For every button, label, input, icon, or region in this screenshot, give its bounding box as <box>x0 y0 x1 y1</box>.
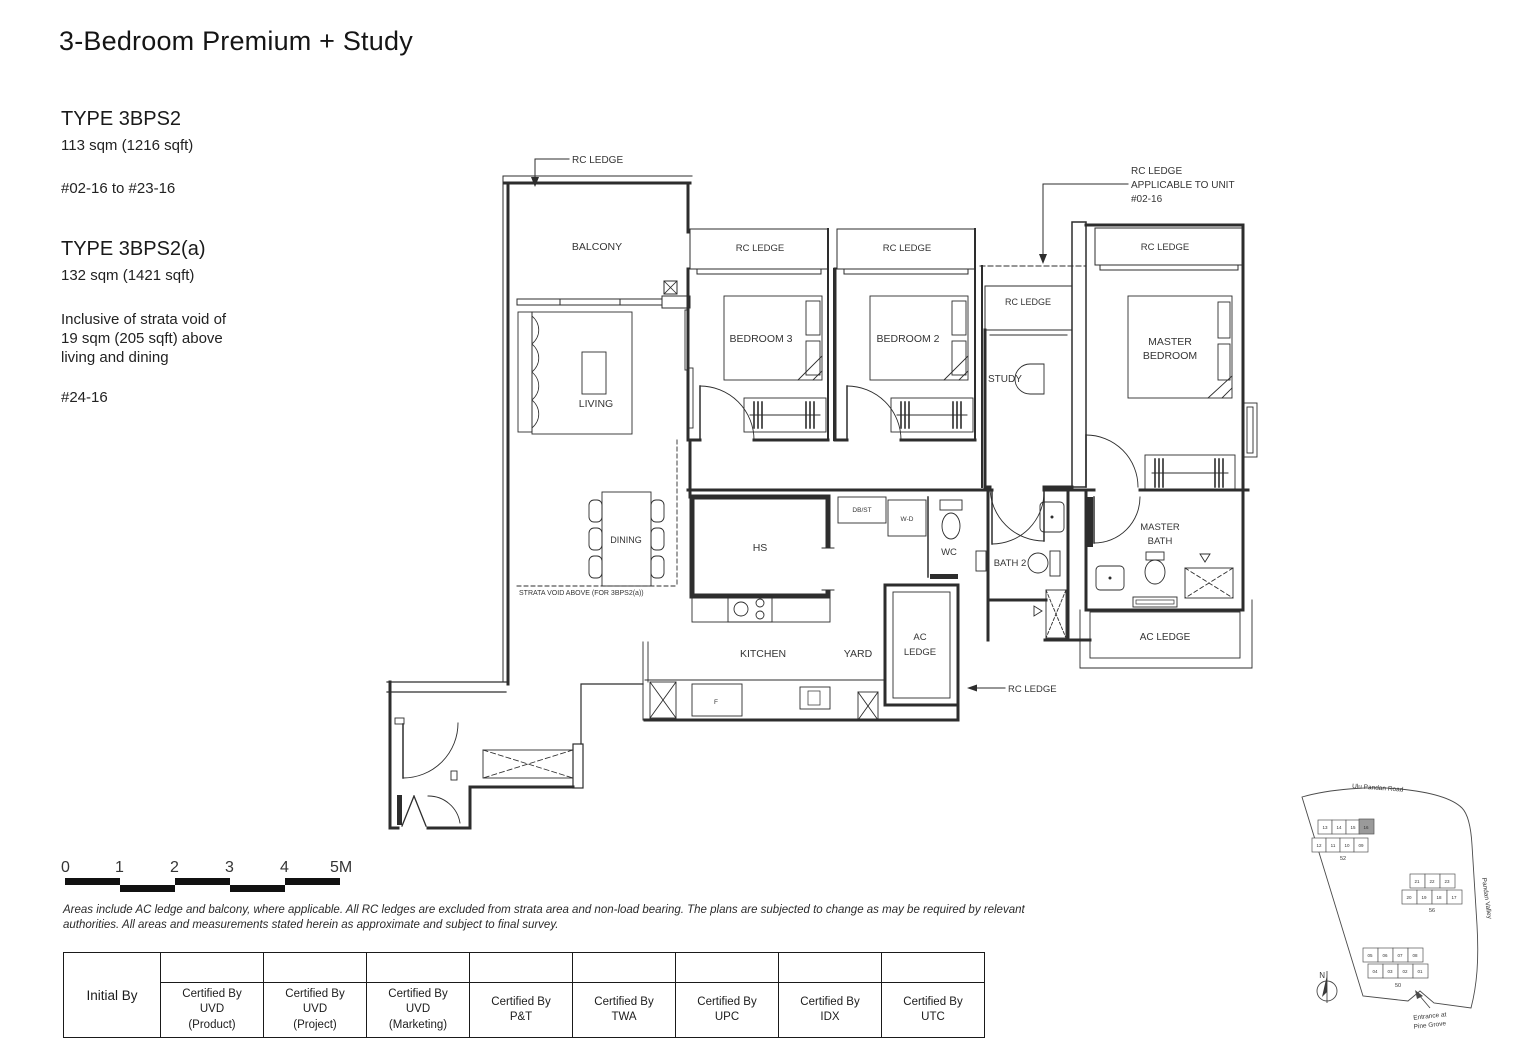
stack-number: 01 <box>1417 969 1423 974</box>
stack-number: 04 <box>1372 969 1378 974</box>
stack-number: 17 <box>1451 895 1457 900</box>
block-label: 52 <box>1340 856 1346 862</box>
scale-tick-4: 4 <box>280 859 289 876</box>
strata-void-note: Inclusive of strata void of 19 sqm (205 … <box>61 310 226 367</box>
strata-void-label: STRATA VOID ABOVE (FOR 3BPS2(a)) <box>519 590 644 597</box>
cert-line: UTC <box>882 1010 984 1025</box>
db-st-label: DB/ST <box>852 507 871 514</box>
wardrobe-master <box>1145 455 1235 491</box>
ac-ledge-mid-label-line1: AC <box>913 632 926 643</box>
hob <box>728 596 772 622</box>
ac-ledge-mid-label-line2: LEDGE <box>904 647 936 658</box>
certified-by-cell: Certified By UTC <box>882 983 985 1038</box>
wardrobe-bedroom2 <box>891 398 973 432</box>
scale-tick-0: 0 <box>61 859 70 876</box>
strata-void-note-line2: 19 sqm (205 sqft) above <box>61 329 226 348</box>
stack-number: 14 <box>1336 825 1342 830</box>
rc-ledge-label-bed2: RC LEDGE <box>883 243 932 254</box>
stack-number: 07 <box>1397 953 1403 958</box>
cert-line: TWA <box>573 1010 675 1025</box>
master-bath-shower <box>1185 568 1233 598</box>
cabinet-hatch-yard <box>858 692 878 720</box>
bedroom2-label: BEDROOM 2 <box>876 333 939 345</box>
block-label: 56 <box>1429 908 1435 914</box>
certified-by-cell: Certified By TWA <box>573 983 676 1038</box>
signature-cell <box>161 953 264 983</box>
rc-ledge-label-master: RC LEDGE <box>1141 242 1190 253</box>
type-2-area: 132 sqm (1421 sqft) <box>61 267 194 284</box>
master-bath-toilet <box>1145 552 1165 584</box>
bath2-toilet <box>1028 551 1060 576</box>
type-2-name: TYPE 3BPS2(a) <box>61 238 206 261</box>
road-label-pandan-valley: Pandan Valley <box>1480 877 1493 920</box>
master-bath-label-line2: BATH <box>1148 536 1173 547</box>
scale-tick-5: 5M <box>330 859 352 876</box>
stack-number: 03 <box>1387 969 1393 974</box>
signature-cell <box>779 953 882 983</box>
balcony-label: BALCONY <box>572 241 622 253</box>
cert-line: Certified By <box>676 995 778 1010</box>
cert-line: UVD <box>264 1002 366 1017</box>
rc-ledge-applicable-line1: RC LEDGE <box>1131 166 1182 177</box>
certified-by-cell: Certified By IDX <box>779 983 882 1038</box>
strata-void-note-line1: Inclusive of strata void of <box>61 310 226 329</box>
entrance-label-line2: Pine Grove <box>1413 1020 1446 1030</box>
wc-toilet <box>940 500 962 539</box>
dining-label: DINING <box>610 535 642 545</box>
stack-number: 20 <box>1406 895 1412 900</box>
cert-line: Certified By <box>882 995 984 1010</box>
stack-number: 05 <box>1367 953 1373 958</box>
certified-by-cell: Certified By UPC <box>676 983 779 1038</box>
bath2-shower <box>1046 590 1066 638</box>
rc-ledge-label-bed3: RC LEDGE <box>736 243 785 254</box>
type-2-units: #24-16 <box>61 389 108 406</box>
cert-line: Certified By <box>779 995 881 1010</box>
yard-label: YARD <box>844 648 873 660</box>
cert-line: P&T <box>470 1010 572 1025</box>
certified-by-cell: Certified By P&T <box>470 983 573 1038</box>
disclaimer-line1: Areas include AC ledge and balcony, wher… <box>63 903 1025 918</box>
cert-line: Certified By <box>573 995 675 1010</box>
certified-by-cell: Certified By UVD (Marketing) <box>367 983 470 1038</box>
stack-number: 08 <box>1412 953 1418 958</box>
cert-line: Certified By <box>367 987 469 1002</box>
cert-line: UVD <box>367 1002 469 1017</box>
cert-line: UPC <box>676 1010 778 1025</box>
signature-cell <box>470 953 573 983</box>
block-label: 50 <box>1395 983 1401 989</box>
wc-label: WC <box>941 547 957 558</box>
certified-by-cell: Certified By UVD (Project) <box>264 983 367 1038</box>
site-map: Ulu Pandan Road Pandan Valley Entrance a… <box>1285 770 1539 1057</box>
stack-number: 09 <box>1358 843 1364 848</box>
cert-line: Certified By <box>264 987 366 1002</box>
signature-cell <box>882 953 985 983</box>
stack-number: 06 <box>1382 953 1388 958</box>
kitchen-label: KITCHEN <box>740 648 786 660</box>
tv-console <box>582 352 606 394</box>
rc-ledge-label-bottom: RC LEDGE <box>1008 684 1057 695</box>
wardrobe-bedroom3 <box>744 398 826 432</box>
stack-number-highlighted: 16 <box>1363 825 1369 830</box>
stack-number: 15 <box>1350 825 1356 830</box>
stack-number: 12 <box>1316 843 1322 848</box>
stack-number: 13 <box>1322 825 1328 830</box>
type-1-name: TYPE 3BPS2 <box>61 108 181 131</box>
master-bath-label-line1: MASTER <box>1140 522 1180 533</box>
stack-number: 18 <box>1436 895 1442 900</box>
fridge-label: F <box>714 699 718 706</box>
rc-ledge-label-study: RC LEDGE <box>1005 297 1051 307</box>
cert-line: Certified By <box>470 995 572 1010</box>
sofa <box>518 312 632 434</box>
bedroom3-label: BEDROOM 3 <box>729 333 792 345</box>
type-1-units: #02-16 to #23-16 <box>61 180 175 197</box>
stack-number: 23 <box>1444 879 1450 884</box>
compass-n-label: N <box>1319 971 1325 980</box>
signature-cell <box>676 953 779 983</box>
certified-by-cell: Certified By UVD (Product) <box>161 983 264 1038</box>
bath2-label: BATH 2 <box>994 558 1027 569</box>
floor-plan: RC LEDGE RC LEDGE APPLICABLE TO UNIT #02… <box>385 145 1265 845</box>
disclaimer-line2: authorities. All areas and measurements … <box>63 918 1025 933</box>
kitchen-sink <box>800 687 830 709</box>
cabinet-hatch-left <box>650 682 676 718</box>
north-compass: N <box>1317 971 1337 1003</box>
cert-line: (Project) <box>264 1018 366 1033</box>
stack-number: 11 <box>1331 843 1336 848</box>
entry-double-door <box>402 796 426 826</box>
stack-number: 02 <box>1402 969 1408 974</box>
disclaimer: Areas include AC ledge and balcony, wher… <box>63 903 1025 933</box>
floorplan-page: { "page": { "title": "3-Bedroom Premium … <box>0 0 1539 1057</box>
certification-table: Initial By Certified By UVD (Product) Ce… <box>63 952 985 1038</box>
stack-number: 19 <box>1421 895 1427 900</box>
initial-by-cell: Initial By <box>64 953 161 1038</box>
scale-tick-2: 2 <box>170 859 179 876</box>
strata-void-note-line3: living and dining <box>61 348 226 367</box>
master-bedroom-label-line2: BEDROOM <box>1143 350 1197 362</box>
scale-tick-3: 3 <box>225 859 234 876</box>
signature-cell <box>573 953 676 983</box>
scale-tick-1: 1 <box>115 859 124 876</box>
cert-line: UVD <box>161 1002 263 1017</box>
cert-line: (Product) <box>161 1018 263 1033</box>
rc-ledge-applicable-line2: APPLICABLE TO UNIT <box>1131 180 1235 191</box>
rc-ledge-applicable-line3: #02-16 <box>1131 194 1163 205</box>
stack-number: 21 <box>1414 879 1420 884</box>
hs-label: HS <box>753 542 768 554</box>
wd-label: W-D <box>901 516 914 523</box>
study-label: STUDY <box>988 374 1022 385</box>
page-title: 3-Bedroom Premium + Study <box>59 26 413 57</box>
rc-ledge-label-topleft: RC LEDGE <box>572 155 623 166</box>
ac-ledge-right-label: AC LEDGE <box>1140 632 1191 643</box>
cert-line: Certified By <box>161 987 263 1002</box>
entry-hatch-box <box>483 750 573 778</box>
signature-cell <box>367 953 470 983</box>
road-label-ulu-pandan: Ulu Pandan Road <box>1352 783 1404 794</box>
master-bedroom-label-line1: MASTER <box>1148 336 1192 348</box>
cert-line: IDX <box>779 1010 881 1025</box>
living-label: LIVING <box>579 398 613 410</box>
stack-number: 10 <box>1344 843 1350 848</box>
cert-line: (Marketing) <box>367 1018 469 1033</box>
stack-number: 22 <box>1429 879 1435 884</box>
type-1-area: 113 sqm (1216 sqft) <box>61 137 193 154</box>
signature-cell <box>264 953 367 983</box>
scale-bar: 0 1 2 3 4 5M <box>58 858 358 900</box>
